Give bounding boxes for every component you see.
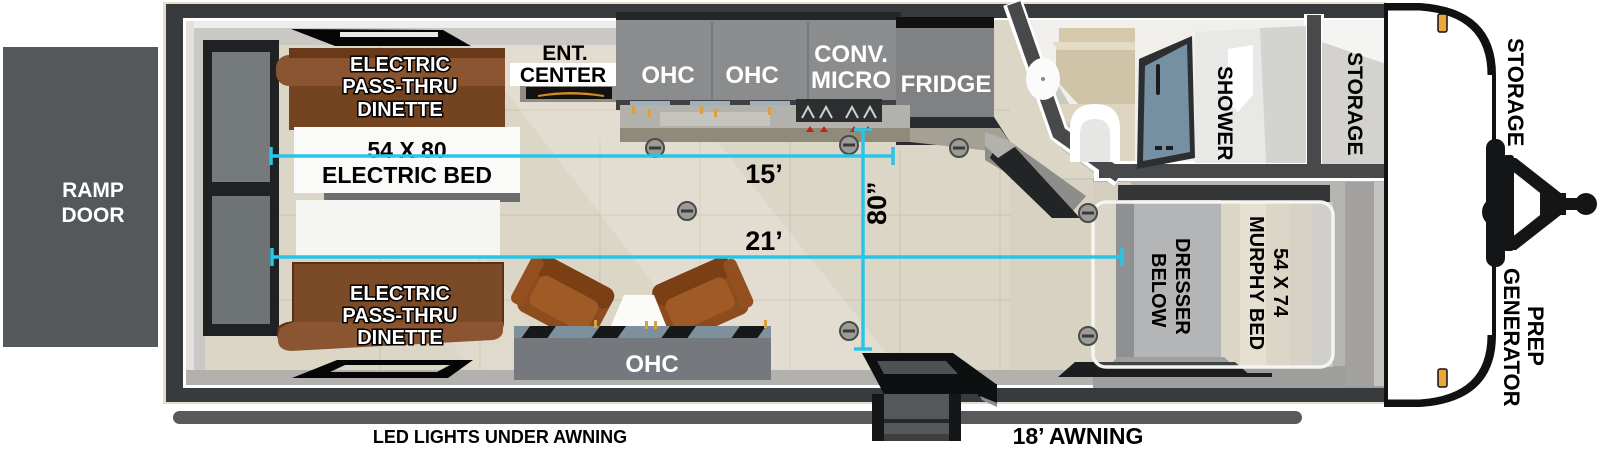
svg-text:OHC: OHC bbox=[725, 62, 778, 89]
svg-text:STORAGE: STORAGE bbox=[1343, 52, 1366, 155]
svg-text:OHC: OHC bbox=[625, 351, 678, 378]
svg-text:18’ AWNING: 18’ AWNING bbox=[1013, 423, 1144, 449]
svg-text:STORAGE: STORAGE bbox=[1503, 38, 1528, 146]
svg-text:CONV.: CONV. bbox=[814, 41, 888, 68]
svg-text:MURPHY BED: MURPHY BED bbox=[1245, 216, 1267, 350]
svg-text:80”: 80” bbox=[862, 181, 892, 225]
svg-text:SHOWER: SHOWER bbox=[1213, 66, 1236, 161]
svg-text:DOOR: DOOR bbox=[62, 204, 125, 227]
svg-text:PASS-THRU: PASS-THRU bbox=[342, 76, 457, 98]
svg-text:ELECTRIC: ELECTRIC bbox=[350, 283, 450, 305]
svg-text:54 X 80: 54 X 80 bbox=[367, 137, 446, 163]
svg-text:BELOW: BELOW bbox=[1147, 253, 1169, 328]
svg-text:PASS-THRU: PASS-THRU bbox=[342, 305, 457, 327]
svg-text:RAMP: RAMP bbox=[62, 179, 124, 202]
svg-text:15’: 15’ bbox=[745, 159, 783, 189]
svg-text:GENERATOR: GENERATOR bbox=[1499, 268, 1524, 407]
svg-text:DINETTE: DINETTE bbox=[357, 327, 443, 349]
svg-text:21’: 21’ bbox=[745, 226, 783, 256]
svg-text:54 X 74: 54 X 74 bbox=[1269, 248, 1291, 318]
svg-text:CENTER: CENTER bbox=[520, 64, 606, 87]
svg-text:LED LIGHTS UNDER AWNING: LED LIGHTS UNDER AWNING bbox=[373, 427, 627, 447]
svg-text:FRIDGE: FRIDGE bbox=[901, 71, 992, 98]
svg-text:PREP: PREP bbox=[1523, 306, 1548, 366]
svg-text:DRESSER: DRESSER bbox=[1171, 238, 1193, 335]
svg-text:ELECTRIC: ELECTRIC bbox=[350, 54, 450, 76]
svg-text:DINETTE: DINETTE bbox=[357, 99, 443, 121]
svg-text:ELECTRIC BED: ELECTRIC BED bbox=[322, 162, 492, 188]
svg-text:ENT.: ENT. bbox=[542, 42, 588, 65]
svg-text:MICRO: MICRO bbox=[811, 67, 891, 94]
svg-text:OHC: OHC bbox=[641, 62, 694, 89]
